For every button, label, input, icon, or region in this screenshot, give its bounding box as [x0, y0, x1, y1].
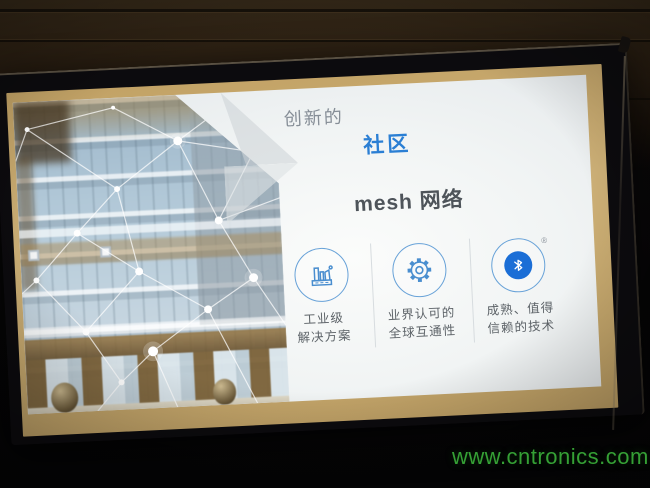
feature-interoperability: 业界认可的 全球互通性 — [373, 241, 468, 344]
feature-label: 业界认可的 全球互通性 — [387, 303, 456, 343]
bluetooth-logo — [504, 251, 533, 280]
projector-screen-frame: 创新的 社区 mesh 网络 — [0, 43, 645, 446]
projector-screen-surface: 创新的 社区 mesh 网络 — [6, 64, 618, 437]
registered-trademark: ® — [541, 236, 547, 245]
site-watermark: www.cntronics.com — [452, 444, 649, 470]
feature-industrial: 工业级 解决方案 — [275, 246, 370, 349]
feature-label: 成熟、值得 信赖的技术 — [486, 299, 555, 339]
photo-scene: 创新的 社区 mesh 网络 — [0, 0, 650, 488]
factory-icon — [293, 247, 350, 304]
gear-icon — [391, 242, 448, 299]
bluetooth-icon: ® — [490, 237, 547, 294]
feature-trusted-technology: ® 成熟、值得 信赖的技术 — [472, 236, 567, 339]
wall-panel-groove — [0, 9, 650, 12]
presentation-slide: 创新的 社区 mesh 网络 — [13, 75, 602, 415]
wall-panel-groove — [0, 40, 650, 42]
feature-label: 工业级 解决方案 — [296, 309, 352, 348]
slide-title-highlight: 社区 — [362, 127, 411, 159]
slide-title-prefix: 创新的 — [283, 103, 344, 132]
slide-title-mesh-network: mesh 网络 — [353, 183, 464, 218]
